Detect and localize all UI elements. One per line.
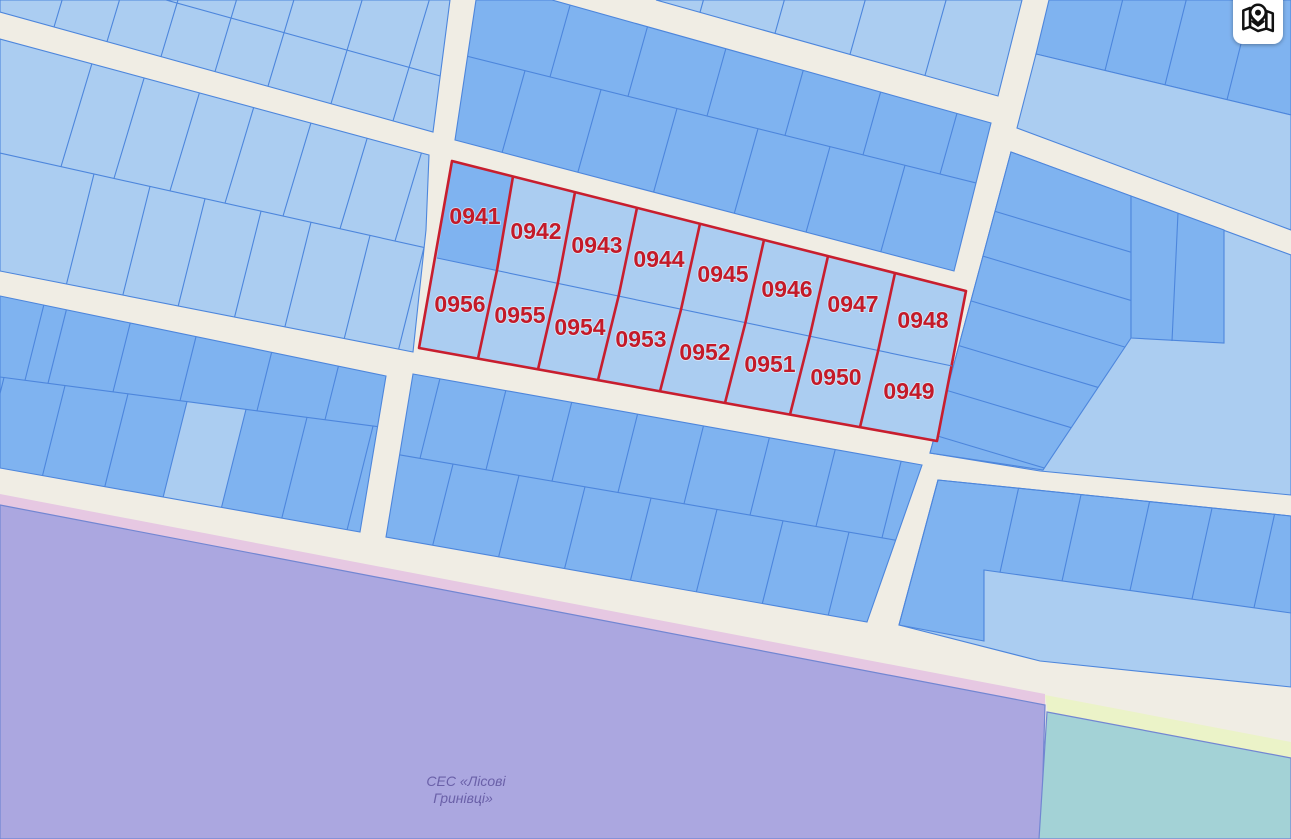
svg-text:0949: 0949 — [883, 378, 934, 404]
svg-text:0948: 0948 — [897, 307, 948, 333]
svg-text:0955: 0955 — [494, 302, 545, 328]
svg-text:0951: 0951 — [744, 351, 795, 377]
svg-text:0946: 0946 — [761, 276, 812, 302]
svg-text:0943: 0943 — [571, 232, 622, 258]
svg-text:0941: 0941 — [449, 203, 500, 229]
svg-text:Гринівці»: Гринівці» — [433, 790, 493, 806]
svg-text:0954: 0954 — [554, 314, 605, 340]
svg-text:0942: 0942 — [510, 218, 561, 244]
svg-text:0952: 0952 — [679, 339, 730, 365]
svg-text:0956: 0956 — [434, 291, 485, 317]
svg-text:0950: 0950 — [810, 364, 861, 390]
svg-text:0953: 0953 — [615, 326, 666, 352]
svg-text:0947: 0947 — [827, 291, 878, 317]
svg-text:0945: 0945 — [697, 261, 748, 287]
svg-text:СЕС «Лісові: СЕС «Лісові — [426, 773, 506, 789]
svg-text:0944: 0944 — [633, 246, 684, 272]
